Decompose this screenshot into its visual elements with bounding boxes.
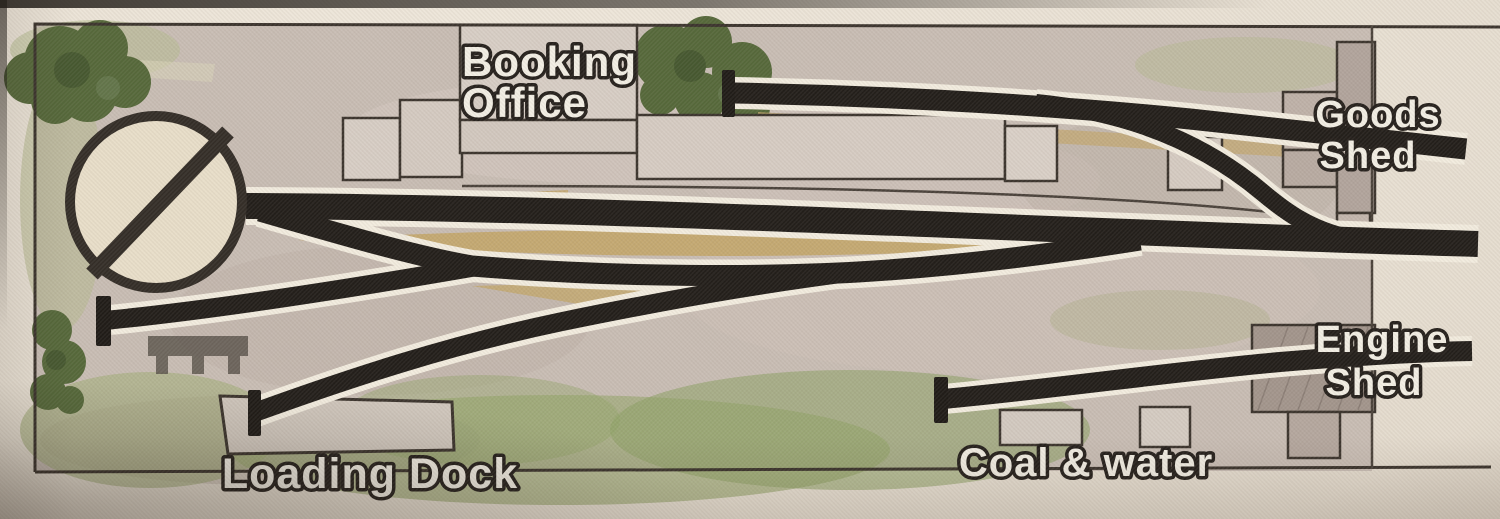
cattle-pen <box>148 336 248 374</box>
track-plan-photo: Booking Office Goods Shed Engine Shed Co… <box>0 0 1500 519</box>
buffer-stop-loading-dock <box>248 390 261 436</box>
label-loading-dock: Loading Dock <box>222 450 518 498</box>
buffer-stop-left-siding <box>96 296 111 346</box>
label-booking-office-line1: Booking <box>462 38 637 85</box>
buffer-stop-goods-siding <box>722 70 735 117</box>
label-goods-shed-line2: Shed <box>1320 135 1417 177</box>
station-building-west-wing <box>400 100 462 177</box>
station-building-long-range <box>637 115 1005 179</box>
label-engine-shed-line1: Engine <box>1316 319 1449 361</box>
coal-stage <box>1000 410 1082 445</box>
turntable <box>70 116 242 288</box>
track-plan-drawing: Booking Office Goods Shed Engine Shed Co… <box>0 0 1500 519</box>
buffer-stop-coal-water <box>934 377 948 423</box>
label-booking-office-line2: Office <box>462 79 587 126</box>
station-building-west-annex <box>343 118 400 180</box>
label-goods-shed-line1: Goods <box>1315 94 1440 136</box>
station-building-east-room <box>1005 126 1057 181</box>
label-coal-and-water: Coal & water <box>959 441 1213 485</box>
label-engine-shed-line2: Shed <box>1326 362 1423 404</box>
